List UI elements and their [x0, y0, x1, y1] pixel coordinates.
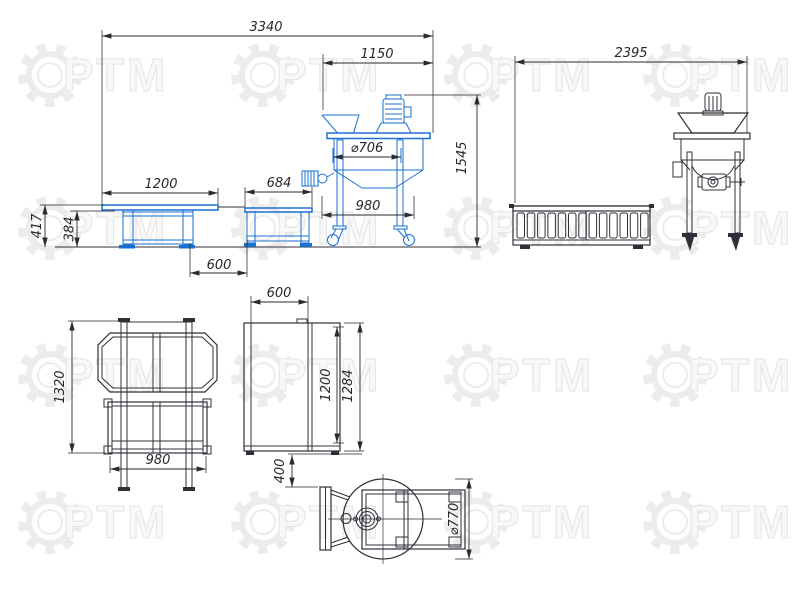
dim-conveyor-height: 417	[30, 213, 45, 239]
watermark-gear-icon	[464, 63, 488, 87]
view-plan-tables-shape	[118, 318, 130, 322]
dim-plan-width: 980	[146, 453, 171, 468]
watermark-text: РТМ	[489, 496, 595, 548]
mixer-motor-shape	[386, 95, 401, 99]
dim-mixer-height: 1545	[455, 141, 470, 174]
dim-table-height: 384	[63, 217, 78, 242]
centerlines	[328, 474, 442, 564]
rotary-table-side-shape	[119, 245, 135, 249]
mixer-motor-shape	[376, 123, 411, 133]
tank-cone	[334, 170, 423, 188]
roller-conveyor-front-shape	[509, 204, 514, 208]
watermark-gear-icon	[251, 510, 275, 534]
view-plan-tables: 1320 980	[53, 318, 217, 491]
watermark-text: РТМ	[63, 496, 169, 548]
discharge-pump-shape	[698, 177, 702, 187]
mixer-motor-shape	[404, 107, 411, 117]
dim-tank-diameter: ⌀706	[351, 141, 384, 156]
watermark-gear-icon	[251, 363, 275, 387]
discharge-pump-shape	[708, 177, 718, 187]
conveyor-slat	[630, 213, 638, 238]
watermark-gear-icon	[663, 363, 687, 387]
dim-conveyor-overall: 1284	[341, 369, 356, 402]
dim-mixer-span: 1150	[360, 47, 393, 62]
dim-table1-length: 1200	[144, 177, 177, 192]
watermark-text: РТМ	[688, 49, 794, 101]
dim-tables-gap: 600	[207, 258, 232, 273]
watermark-ptm: РТМ	[449, 48, 595, 102]
watermark-text: РТМ	[688, 496, 794, 548]
watermark-ptm: РТМ	[23, 495, 169, 549]
watermark-gear-icon	[464, 510, 488, 534]
conveyor-rail-right	[186, 321, 192, 489]
watermark-ptm: РТМ	[449, 495, 595, 549]
conveyor-rail-left	[121, 321, 127, 489]
mixer-rear-shape	[682, 233, 697, 237]
view-plan-tables-shape	[112, 402, 203, 453]
hopper-rear	[678, 113, 748, 133]
watermark-gear-icon	[464, 363, 488, 387]
watermark-ptm: РТМ	[23, 48, 169, 102]
discharge-pump-shape	[702, 174, 726, 190]
roller-conveyor-front-shape	[633, 245, 643, 249]
outlet-pump-shape	[327, 173, 334, 177]
watermark-gear-icon	[251, 63, 275, 87]
watermark-gear-icon	[38, 510, 62, 534]
mixer-rear-shape	[673, 162, 682, 177]
mixer-rear-shape	[674, 133, 750, 139]
view-plan-conveyor-shape	[246, 451, 254, 455]
mixer-frame-plan-shape	[404, 490, 408, 549]
dim-end-overall: 2395	[614, 46, 647, 61]
watermark-text: РТМ	[489, 349, 595, 401]
roller-conveyor-front-shape	[520, 245, 530, 249]
watermark-ptm: РТМ	[648, 495, 794, 549]
dim-base-width: 980	[356, 199, 381, 214]
conveyor-slat	[620, 213, 628, 238]
dim-conveyor-width: 600	[267, 286, 292, 301]
watermark-text: РТМ	[489, 49, 595, 101]
outlet-pump-shape	[318, 174, 327, 183]
discharge-pump	[698, 174, 745, 190]
technical-drawing-page: РТМРТМРТМРТМРТМРТМРТМРТМРТМРТМРТМРТМРТМР…	[0, 0, 800, 600]
view-plan-tables-shape	[118, 487, 130, 491]
equipment-drawing: РТМРТМРТМРТМРТМРТМРТМРТМРТМРТМРТМРТМРТМР…	[0, 0, 800, 600]
view-plan-tables-shape	[183, 318, 195, 322]
dimensions-plan-conveyor-shape	[285, 454, 362, 487]
watermark-ptm: РТМ	[648, 348, 794, 402]
discharge-pump-shape	[730, 178, 745, 186]
watermark-gear-icon	[663, 63, 687, 87]
watermark-ptm: РТМ	[648, 201, 794, 255]
dim-table2-length: 684	[267, 176, 292, 191]
view-plan-conveyor-shape	[331, 451, 339, 455]
discharge-pump-shape	[711, 180, 715, 184]
dim-overall-length: 3340	[249, 20, 282, 35]
caster-wheels-shape	[394, 226, 407, 229]
dim-tank-plan-diameter: ⌀770	[447, 503, 462, 536]
view-plan-conveyor-shape	[297, 319, 307, 323]
watermark-gear-icon	[38, 63, 62, 87]
conveyor-slat	[610, 213, 618, 238]
watermark-text: РТМ	[63, 49, 169, 101]
feed-hopper	[322, 115, 359, 133]
mixer-side-shape	[327, 133, 430, 139]
roller-conveyor-front-shape	[649, 204, 654, 208]
watermark-ptm: РТМ	[449, 348, 595, 402]
watermark-gear-icon	[663, 510, 687, 534]
view-plan-tables-shape	[183, 487, 195, 491]
conveyor-slat	[599, 213, 607, 238]
outlet-pump-shape	[302, 171, 318, 186]
dim-plan-length: 1320	[53, 370, 68, 403]
watermark-ptm: РТМ	[23, 348, 169, 402]
watermark-gear-icon	[464, 216, 488, 240]
watermark-layer: РТМРТМРТМРТМРТМРТМРТМРТМРТМРТМРТМРТМРТМР…	[23, 48, 794, 549]
rotary-table-side-shape	[179, 245, 195, 249]
work-table-side-shape	[300, 243, 312, 247]
view-plan-mixer: ⌀770	[320, 474, 473, 564]
dim-belt-length: 1200	[319, 368, 334, 401]
view-plan-tables-shape	[112, 406, 203, 449]
mixer-motor-shape	[385, 104, 402, 119]
outlet-pump-shape	[305, 171, 314, 186]
mixer-rear-shape	[728, 233, 743, 237]
dim-offset: 400	[273, 459, 288, 484]
outlet-pump	[302, 171, 334, 186]
work-table-side-shape	[244, 243, 256, 247]
discharge-pump-shape	[726, 177, 730, 187]
watermark-text: РТМ	[688, 202, 794, 254]
watermark-text: РТМ	[688, 349, 794, 401]
